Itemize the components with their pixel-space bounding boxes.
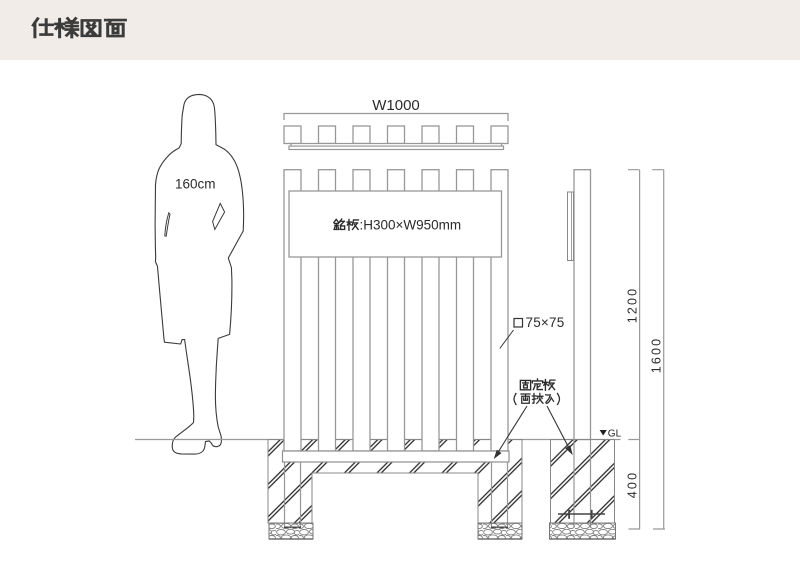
svg-text:1600: 1600 [649, 337, 663, 374]
svg-text:160cm: 160cm [175, 177, 216, 192]
svg-text:400: 400 [625, 471, 639, 498]
svg-text:W1000: W1000 [372, 97, 420, 114]
svg-text:GL: GL [608, 428, 622, 439]
svg-text::H300×W950mm: :H300×W950mm [360, 218, 462, 233]
svg-text:1200: 1200 [625, 287, 639, 324]
svg-text:75×75: 75×75 [526, 315, 565, 330]
